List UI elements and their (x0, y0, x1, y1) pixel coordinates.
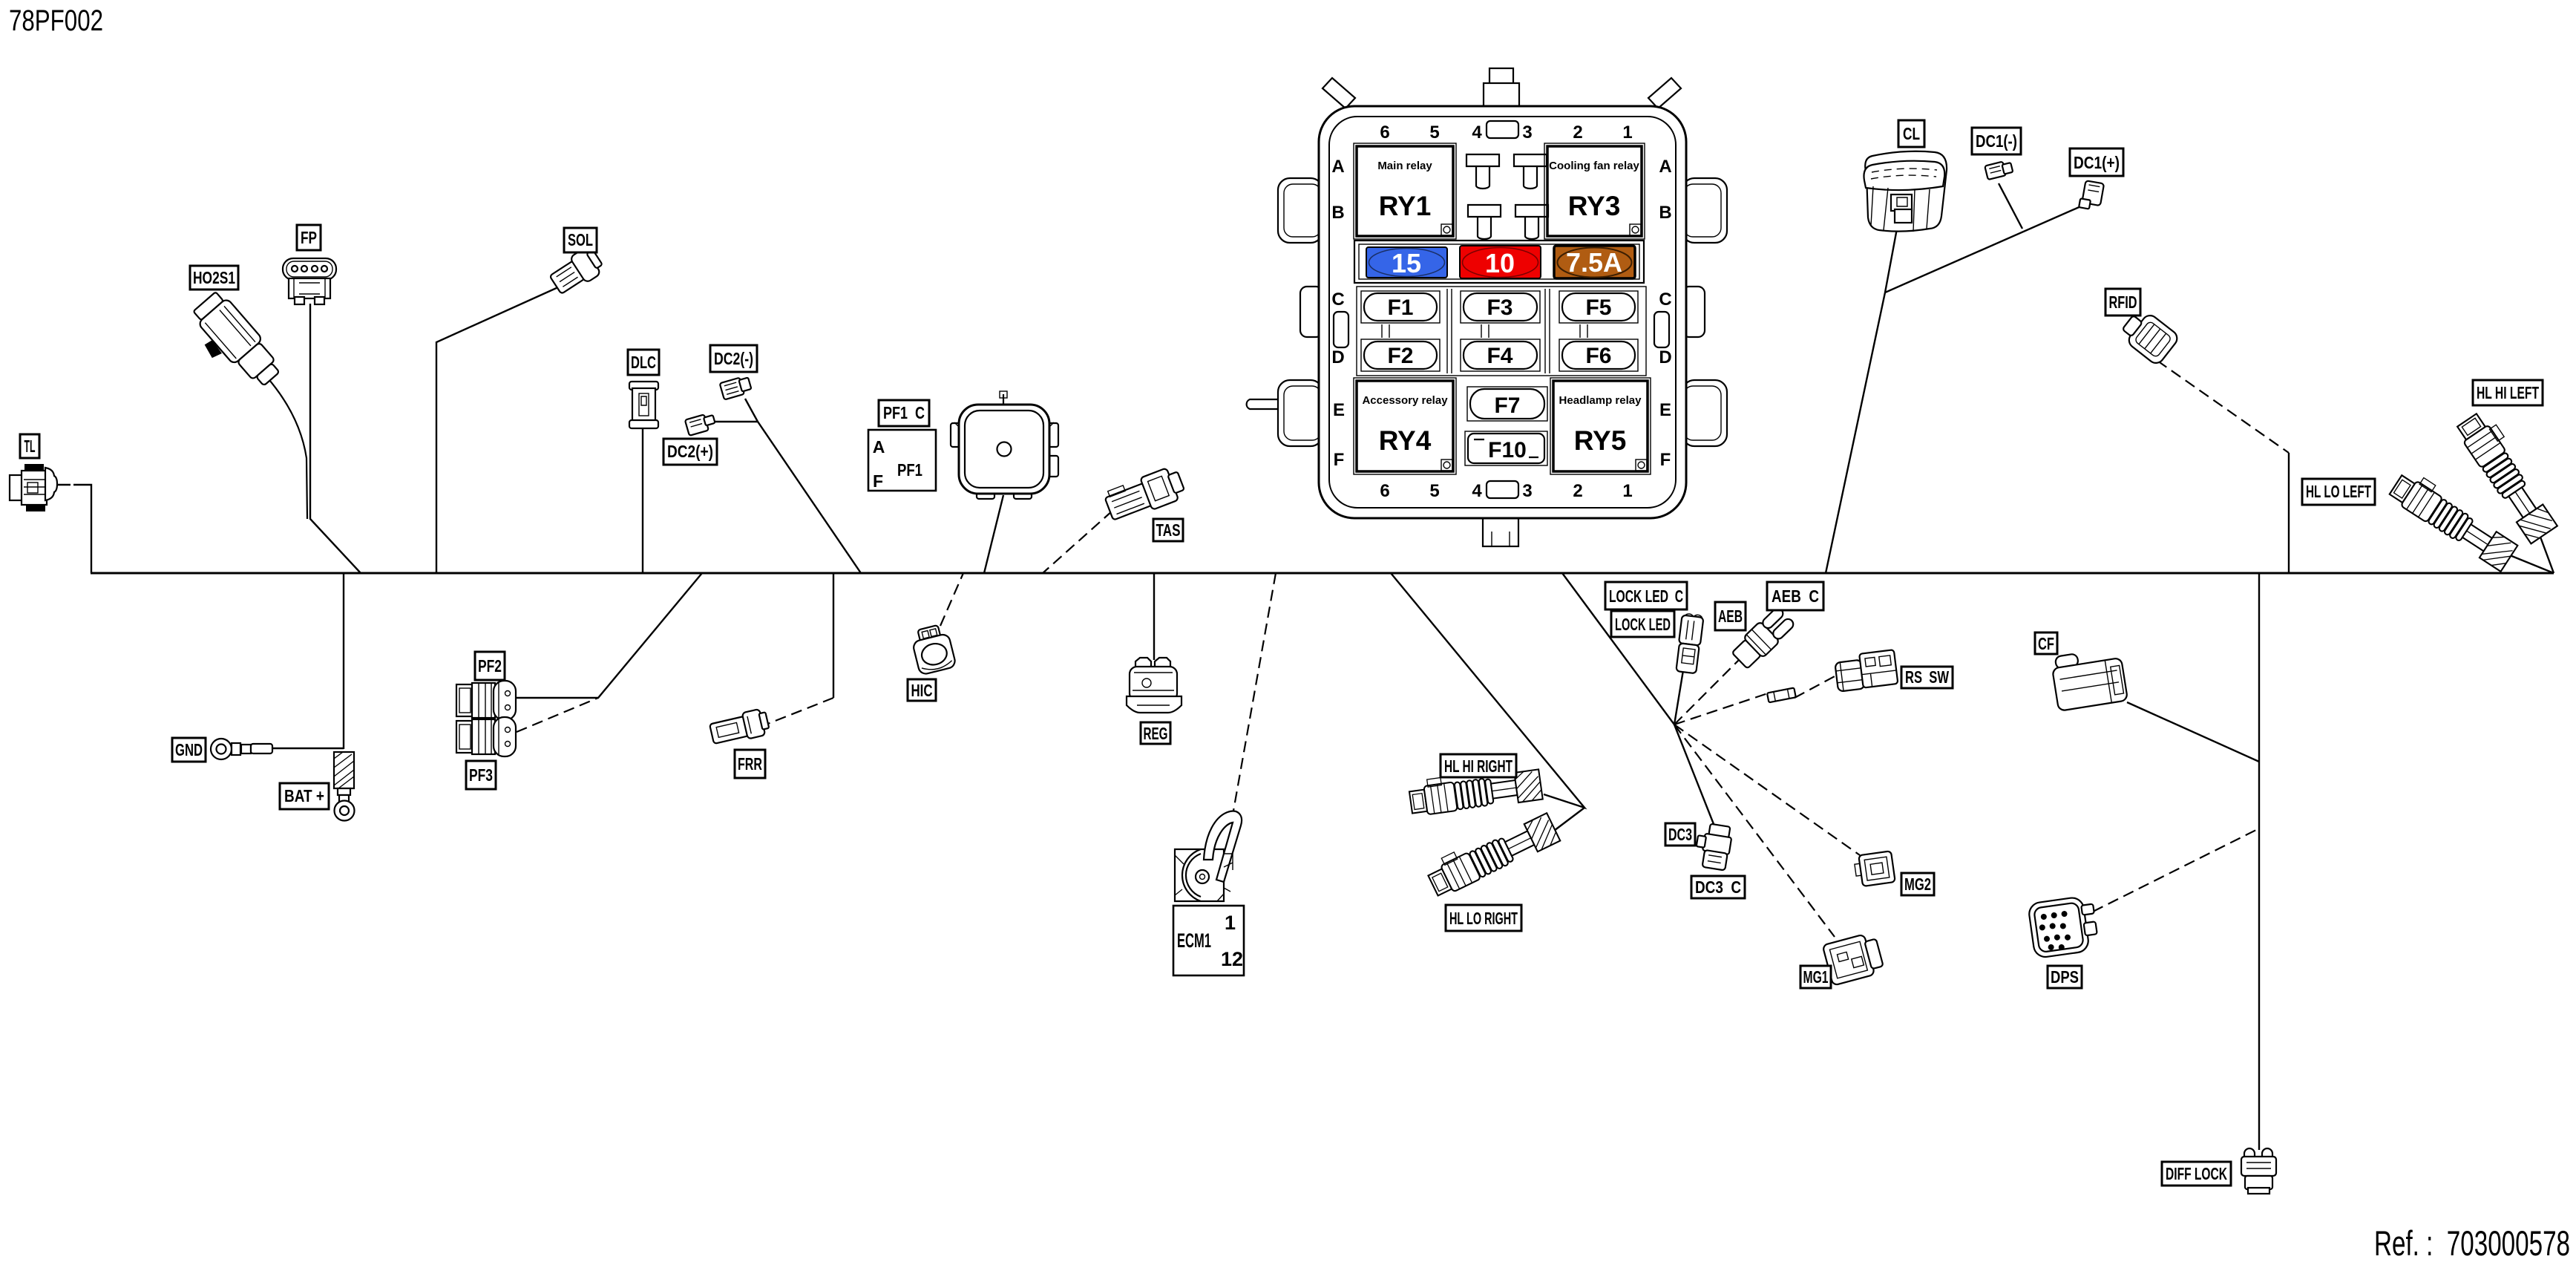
svg-text:C: C (1331, 290, 1344, 310)
svg-text:1: 1 (1622, 122, 1632, 143)
svg-text:LOCK LED: LOCK LED (1615, 615, 1671, 634)
svg-text:MG2: MG2 (1904, 874, 1931, 894)
svg-text:DC3 C: DC3 C (1695, 877, 1741, 897)
svg-text:LOCK LED C: LOCK LED C (1609, 586, 1683, 606)
svg-text:TL: TL (24, 437, 36, 456)
svg-text:HL HI LEFT: HL HI LEFT (2477, 383, 2539, 402)
svg-text:RS SW: RS SW (1905, 667, 1949, 687)
svg-text:C: C (1659, 290, 1671, 310)
svg-text:RY4: RY4 (1379, 425, 1432, 456)
svg-text:7.5A: 7.5A (1566, 247, 1622, 278)
svg-text:3: 3 (1522, 122, 1532, 143)
svg-text:TAS: TAS (1156, 520, 1181, 540)
svg-text:CL: CL (1903, 124, 1920, 143)
svg-text:PF3: PF3 (469, 765, 493, 785)
svg-text:RY5: RY5 (1574, 425, 1627, 456)
svg-text:78PF002: 78PF002 (9, 4, 103, 37)
svg-text:A: A (1331, 157, 1344, 177)
svg-text:1: 1 (1225, 912, 1236, 934)
svg-text:GND: GND (175, 740, 203, 759)
svg-text:Headlamp relay: Headlamp relay (1559, 394, 1642, 407)
svg-text:6: 6 (1380, 481, 1389, 501)
svg-text:2: 2 (1573, 481, 1582, 501)
svg-text:F: F (873, 471, 883, 491)
svg-text:F3: F3 (1487, 295, 1513, 320)
svg-text:F5: F5 (1585, 295, 1611, 320)
svg-text:F10: F10 (1488, 438, 1527, 462)
svg-text:ECM1: ECM1 (1177, 929, 1211, 952)
svg-text:CF: CF (2038, 634, 2054, 653)
svg-text:FP: FP (301, 228, 317, 247)
svg-text:F2: F2 (1387, 344, 1413, 368)
svg-text:5: 5 (1429, 481, 1439, 501)
svg-text:MG1: MG1 (1803, 967, 1829, 987)
svg-text:HIC: HIC (911, 681, 933, 700)
svg-text:AEB C: AEB C (1772, 586, 1819, 606)
svg-text:12: 12 (1221, 948, 1243, 970)
svg-text:F: F (1334, 450, 1345, 470)
svg-text:A: A (1659, 157, 1671, 177)
svg-text:Cooling fan relay: Cooling fan relay (1549, 160, 1639, 172)
svg-text:REG: REG (1144, 724, 1168, 743)
svg-text:SOL: SOL (568, 230, 593, 249)
svg-text:RFID: RFID (2109, 292, 2137, 312)
svg-text:DLC: DLC (631, 353, 656, 372)
svg-text:3: 3 (1522, 481, 1532, 501)
svg-text:AEB: AEB (1718, 607, 1743, 626)
svg-text:Ref. : 703000578: Ref. : 703000578 (2374, 1223, 2570, 1262)
svg-text:A: A (873, 437, 885, 457)
svg-text:Accessory relay: Accessory relay (1362, 394, 1448, 407)
svg-text:F7: F7 (1494, 393, 1520, 418)
svg-text:DC2(-): DC2(-) (714, 349, 753, 368)
svg-text:E: E (1659, 400, 1671, 420)
svg-text:HL HI RIGHT: HL HI RIGHT (1444, 756, 1513, 776)
svg-text:F1: F1 (1387, 295, 1413, 320)
svg-text:D: D (1659, 347, 1671, 367)
svg-text:B: B (1659, 203, 1671, 223)
svg-text:PF1: PF1 (897, 460, 922, 480)
svg-text:F: F (1660, 450, 1671, 470)
svg-text:D: D (1331, 347, 1344, 367)
svg-text:Main relay: Main relay (1377, 160, 1432, 172)
svg-text:4: 4 (1472, 122, 1482, 143)
svg-text:BAT +: BAT + (284, 786, 324, 805)
svg-text:DPS: DPS (2051, 967, 2079, 987)
svg-text:2: 2 (1573, 122, 1582, 143)
svg-text:PF2: PF2 (478, 656, 502, 676)
svg-text:DC1(+): DC1(+) (2074, 153, 2120, 172)
svg-text:5: 5 (1429, 122, 1439, 143)
svg-text:HL LO LEFT: HL LO LEFT (2306, 482, 2371, 501)
svg-text:15: 15 (1392, 248, 1421, 278)
svg-text:HL LO RIGHT: HL LO RIGHT (1449, 909, 1518, 928)
svg-text:RY1: RY1 (1379, 191, 1432, 221)
svg-text:10: 10 (1485, 248, 1515, 278)
svg-text:DIFF LOCK: DIFF LOCK (2166, 1164, 2227, 1183)
svg-text:FRR: FRR (738, 754, 762, 774)
svg-text:DC1(-): DC1(-) (1976, 131, 2017, 151)
svg-text:B: B (1331, 203, 1344, 223)
svg-text:RY3: RY3 (1568, 191, 1621, 221)
svg-text:F4: F4 (1487, 344, 1513, 368)
svg-text:DC3: DC3 (1668, 825, 1692, 844)
svg-text:HO2S1: HO2S1 (193, 268, 235, 287)
svg-text:6: 6 (1380, 122, 1389, 143)
svg-text:4: 4 (1472, 481, 1482, 501)
svg-text:1: 1 (1622, 481, 1632, 501)
svg-text:F6: F6 (1585, 344, 1611, 368)
svg-text:PF1 C: PF1 C (883, 403, 925, 422)
svg-text:E: E (1333, 400, 1345, 420)
svg-text:DC2(+): DC2(+) (667, 442, 713, 461)
